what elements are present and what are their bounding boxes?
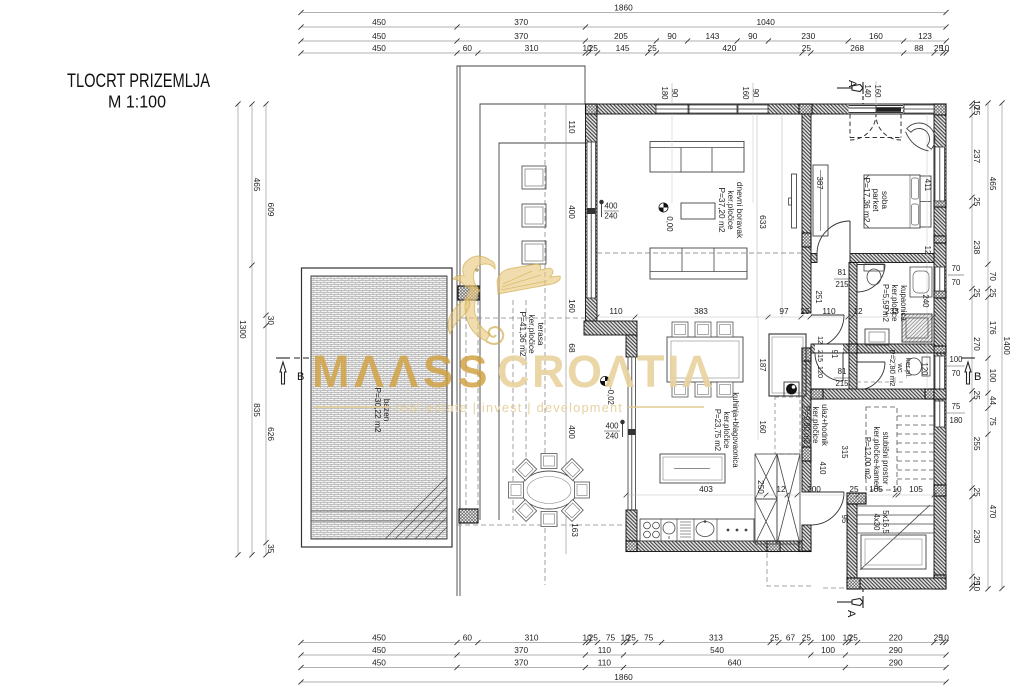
svg-text:626: 626 xyxy=(266,427,276,441)
svg-text:403: 403 xyxy=(699,484,713,494)
svg-text:25: 25 xyxy=(972,106,982,116)
svg-text:12: 12 xyxy=(816,336,825,344)
svg-text:251: 251 xyxy=(814,290,823,303)
svg-text:10: 10 xyxy=(972,582,982,592)
svg-text:370: 370 xyxy=(514,31,528,41)
svg-text:120: 120 xyxy=(816,366,825,378)
svg-text:180: 180 xyxy=(949,416,963,425)
svg-text:P=17,36 m2: P=17,36 m2 xyxy=(862,178,872,223)
svg-text:ker.pločice: ker.pločice xyxy=(722,412,731,449)
svg-text:230: 230 xyxy=(801,31,815,41)
svg-text:200: 200 xyxy=(807,484,821,494)
svg-text:75: 75 xyxy=(606,632,616,642)
svg-text:stubišni prostor: stubišni prostor xyxy=(881,432,890,485)
svg-text:M 1:100: M 1:100 xyxy=(108,92,166,112)
svg-text:4x30: 4x30 xyxy=(872,514,881,532)
svg-text:835: 835 xyxy=(252,403,262,417)
svg-text:MΛΛSS: MΛΛSS xyxy=(312,346,492,397)
svg-text:0,00: 0,00 xyxy=(665,216,674,232)
svg-text:1860: 1860 xyxy=(614,2,633,12)
svg-text:12: 12 xyxy=(776,484,786,494)
svg-text:CROΛTIΛ: CROΛTIΛ xyxy=(497,346,715,397)
svg-text:1400: 1400 xyxy=(1002,336,1012,355)
svg-text:25: 25 xyxy=(972,197,982,207)
svg-text:75: 75 xyxy=(952,402,961,411)
svg-text:268: 268 xyxy=(850,43,864,53)
svg-text:450: 450 xyxy=(372,17,386,27)
svg-text:450: 450 xyxy=(372,43,386,53)
svg-text:233: 233 xyxy=(885,306,899,316)
svg-text:25: 25 xyxy=(800,306,810,316)
svg-text:110: 110 xyxy=(598,645,612,655)
svg-text:123: 123 xyxy=(918,31,932,41)
svg-text:238: 238 xyxy=(972,240,982,254)
svg-text:12: 12 xyxy=(923,246,932,255)
svg-text:60: 60 xyxy=(463,43,473,53)
svg-text:250: 250 xyxy=(756,480,766,494)
svg-text:90: 90 xyxy=(748,31,758,41)
svg-text:450: 450 xyxy=(372,632,386,642)
svg-text:290: 290 xyxy=(889,657,903,667)
svg-text:70: 70 xyxy=(952,264,961,273)
svg-text:25: 25 xyxy=(802,43,812,53)
svg-text:90: 90 xyxy=(667,31,677,41)
svg-text:25: 25 xyxy=(802,632,812,642)
svg-text:411: 411 xyxy=(923,179,932,191)
svg-text:313: 313 xyxy=(709,632,723,642)
svg-text:420: 420 xyxy=(722,43,736,53)
svg-text:44: 44 xyxy=(988,396,998,406)
svg-text:180: 180 xyxy=(660,86,669,100)
svg-text:25: 25 xyxy=(770,632,780,642)
svg-text:kuhinja+blagovaonica: kuhinja+blagovaonica xyxy=(731,392,740,468)
svg-text:240: 240 xyxy=(921,294,930,308)
svg-text:25: 25 xyxy=(647,43,657,53)
svg-text:25: 25 xyxy=(988,288,998,298)
svg-text:290: 290 xyxy=(889,645,903,655)
svg-text:81: 81 xyxy=(838,367,847,376)
svg-text:310: 310 xyxy=(525,632,539,642)
svg-text:450: 450 xyxy=(372,31,386,41)
svg-text:P=23,75 m2: P=23,75 m2 xyxy=(713,409,722,451)
svg-text:1860: 1860 xyxy=(614,672,633,682)
svg-text:400: 400 xyxy=(604,202,618,211)
svg-text:215: 215 xyxy=(816,350,825,362)
svg-text:163: 163 xyxy=(570,523,580,537)
svg-text:B: B xyxy=(297,371,304,383)
svg-text:110: 110 xyxy=(567,120,577,134)
svg-text:100: 100 xyxy=(821,645,835,655)
svg-text:67: 67 xyxy=(786,632,796,642)
svg-text:237: 237 xyxy=(972,149,982,163)
svg-text:143: 143 xyxy=(705,31,719,41)
svg-text:450: 450 xyxy=(372,657,386,667)
svg-text:400: 400 xyxy=(567,205,577,219)
svg-text:100: 100 xyxy=(821,632,835,642)
svg-text:400: 400 xyxy=(567,425,577,439)
svg-text:25: 25 xyxy=(627,632,637,642)
svg-text:140: 140 xyxy=(863,84,872,98)
svg-text:160: 160 xyxy=(758,420,767,434)
svg-text:633: 633 xyxy=(758,215,768,229)
svg-text:5x16,5: 5x16,5 xyxy=(881,510,890,534)
svg-text:400: 400 xyxy=(605,422,619,431)
svg-text:25: 25 xyxy=(589,632,599,642)
svg-text:10: 10 xyxy=(940,632,950,642)
svg-text:real estate | invest | develop: real estate | invest | development xyxy=(395,400,623,415)
svg-text:ulaz+hodnik: ulaz+hodnik xyxy=(820,404,829,446)
svg-text:105: 105 xyxy=(869,484,883,494)
svg-text:240: 240 xyxy=(604,212,618,221)
svg-text:465: 465 xyxy=(988,177,998,191)
svg-text:30: 30 xyxy=(266,316,276,326)
svg-text:215: 215 xyxy=(835,280,849,289)
svg-text:88: 88 xyxy=(914,43,924,53)
svg-text:176: 176 xyxy=(988,321,998,335)
svg-text:310: 310 xyxy=(525,43,539,53)
svg-text:P=12,00 m2: P=12,00 m2 xyxy=(863,437,872,479)
svg-text:75: 75 xyxy=(988,417,998,427)
svg-text:25: 25 xyxy=(972,488,982,498)
svg-text:25: 25 xyxy=(972,288,982,298)
svg-text:370: 370 xyxy=(514,17,528,27)
svg-text:315: 315 xyxy=(840,445,849,459)
svg-text:450: 450 xyxy=(372,645,386,655)
svg-text:370: 370 xyxy=(514,657,528,667)
svg-text:P=9,80 m2: P=9,80 m2 xyxy=(802,406,811,444)
svg-text:25: 25 xyxy=(972,391,982,401)
svg-text:95: 95 xyxy=(840,515,849,524)
svg-text:220: 220 xyxy=(889,632,903,642)
svg-text:215: 215 xyxy=(835,379,849,388)
svg-text:383: 383 xyxy=(694,306,708,316)
svg-text:10: 10 xyxy=(940,43,950,53)
svg-text:110: 110 xyxy=(609,306,623,316)
svg-text:97: 97 xyxy=(779,306,789,316)
svg-text:205: 205 xyxy=(614,31,628,41)
svg-text:P=2,80 m2: P=2,80 m2 xyxy=(888,350,897,387)
svg-text:230: 230 xyxy=(972,530,982,544)
svg-text:P=37,20 m2: P=37,20 m2 xyxy=(717,188,727,233)
svg-text:640: 640 xyxy=(728,657,742,667)
svg-text:25: 25 xyxy=(589,43,599,53)
svg-text:P=5,59 m2: P=5,59 m2 xyxy=(881,284,890,322)
svg-text:ker.pločice-kamen: ker.pločice-kamen xyxy=(872,427,881,490)
svg-text:145: 145 xyxy=(616,43,630,53)
svg-text:187: 187 xyxy=(758,358,767,371)
svg-text:25: 25 xyxy=(849,484,859,494)
svg-text:470: 470 xyxy=(988,505,998,519)
svg-text:12: 12 xyxy=(853,306,863,316)
svg-text:B: B xyxy=(974,371,981,383)
svg-text:240: 240 xyxy=(605,432,619,441)
svg-text:410: 410 xyxy=(818,461,827,475)
svg-text:609: 609 xyxy=(266,203,276,217)
svg-text:540: 540 xyxy=(710,645,724,655)
svg-text:75: 75 xyxy=(644,632,654,642)
svg-text:A: A xyxy=(845,610,857,618)
svg-text:60: 60 xyxy=(463,632,473,642)
svg-text:90: 90 xyxy=(670,89,679,98)
svg-text:kupaonica: kupaonica xyxy=(899,285,908,321)
svg-text:100: 100 xyxy=(949,355,963,364)
svg-text:100: 100 xyxy=(988,369,998,383)
svg-text:10: 10 xyxy=(892,484,902,494)
svg-text:270: 270 xyxy=(972,337,982,351)
svg-text:105: 105 xyxy=(909,484,923,494)
svg-text:110: 110 xyxy=(822,306,836,316)
svg-text:81: 81 xyxy=(838,268,847,277)
svg-text:160: 160 xyxy=(869,31,883,41)
svg-text:110: 110 xyxy=(598,657,612,667)
svg-text:ker.pločice: ker.pločice xyxy=(811,407,820,444)
svg-text:70: 70 xyxy=(952,369,961,378)
svg-text:160: 160 xyxy=(873,84,882,98)
svg-text:TLOCRT PRIZEMLJA: TLOCRT PRIZEMLJA xyxy=(67,70,210,92)
svg-text:1300: 1300 xyxy=(238,320,248,339)
svg-text:90: 90 xyxy=(751,89,760,98)
svg-text:160: 160 xyxy=(567,299,577,313)
svg-text:70: 70 xyxy=(988,272,998,282)
svg-text:160: 160 xyxy=(741,86,750,100)
svg-text:70: 70 xyxy=(952,278,961,287)
svg-text:255: 255 xyxy=(972,437,982,451)
svg-text:387: 387 xyxy=(815,176,824,189)
svg-text:25: 25 xyxy=(849,632,859,642)
svg-text:35: 35 xyxy=(266,544,276,554)
svg-text:91: 91 xyxy=(830,350,839,359)
svg-text:1040: 1040 xyxy=(756,17,775,27)
svg-text:465: 465 xyxy=(252,178,262,192)
svg-text:370: 370 xyxy=(514,645,528,655)
